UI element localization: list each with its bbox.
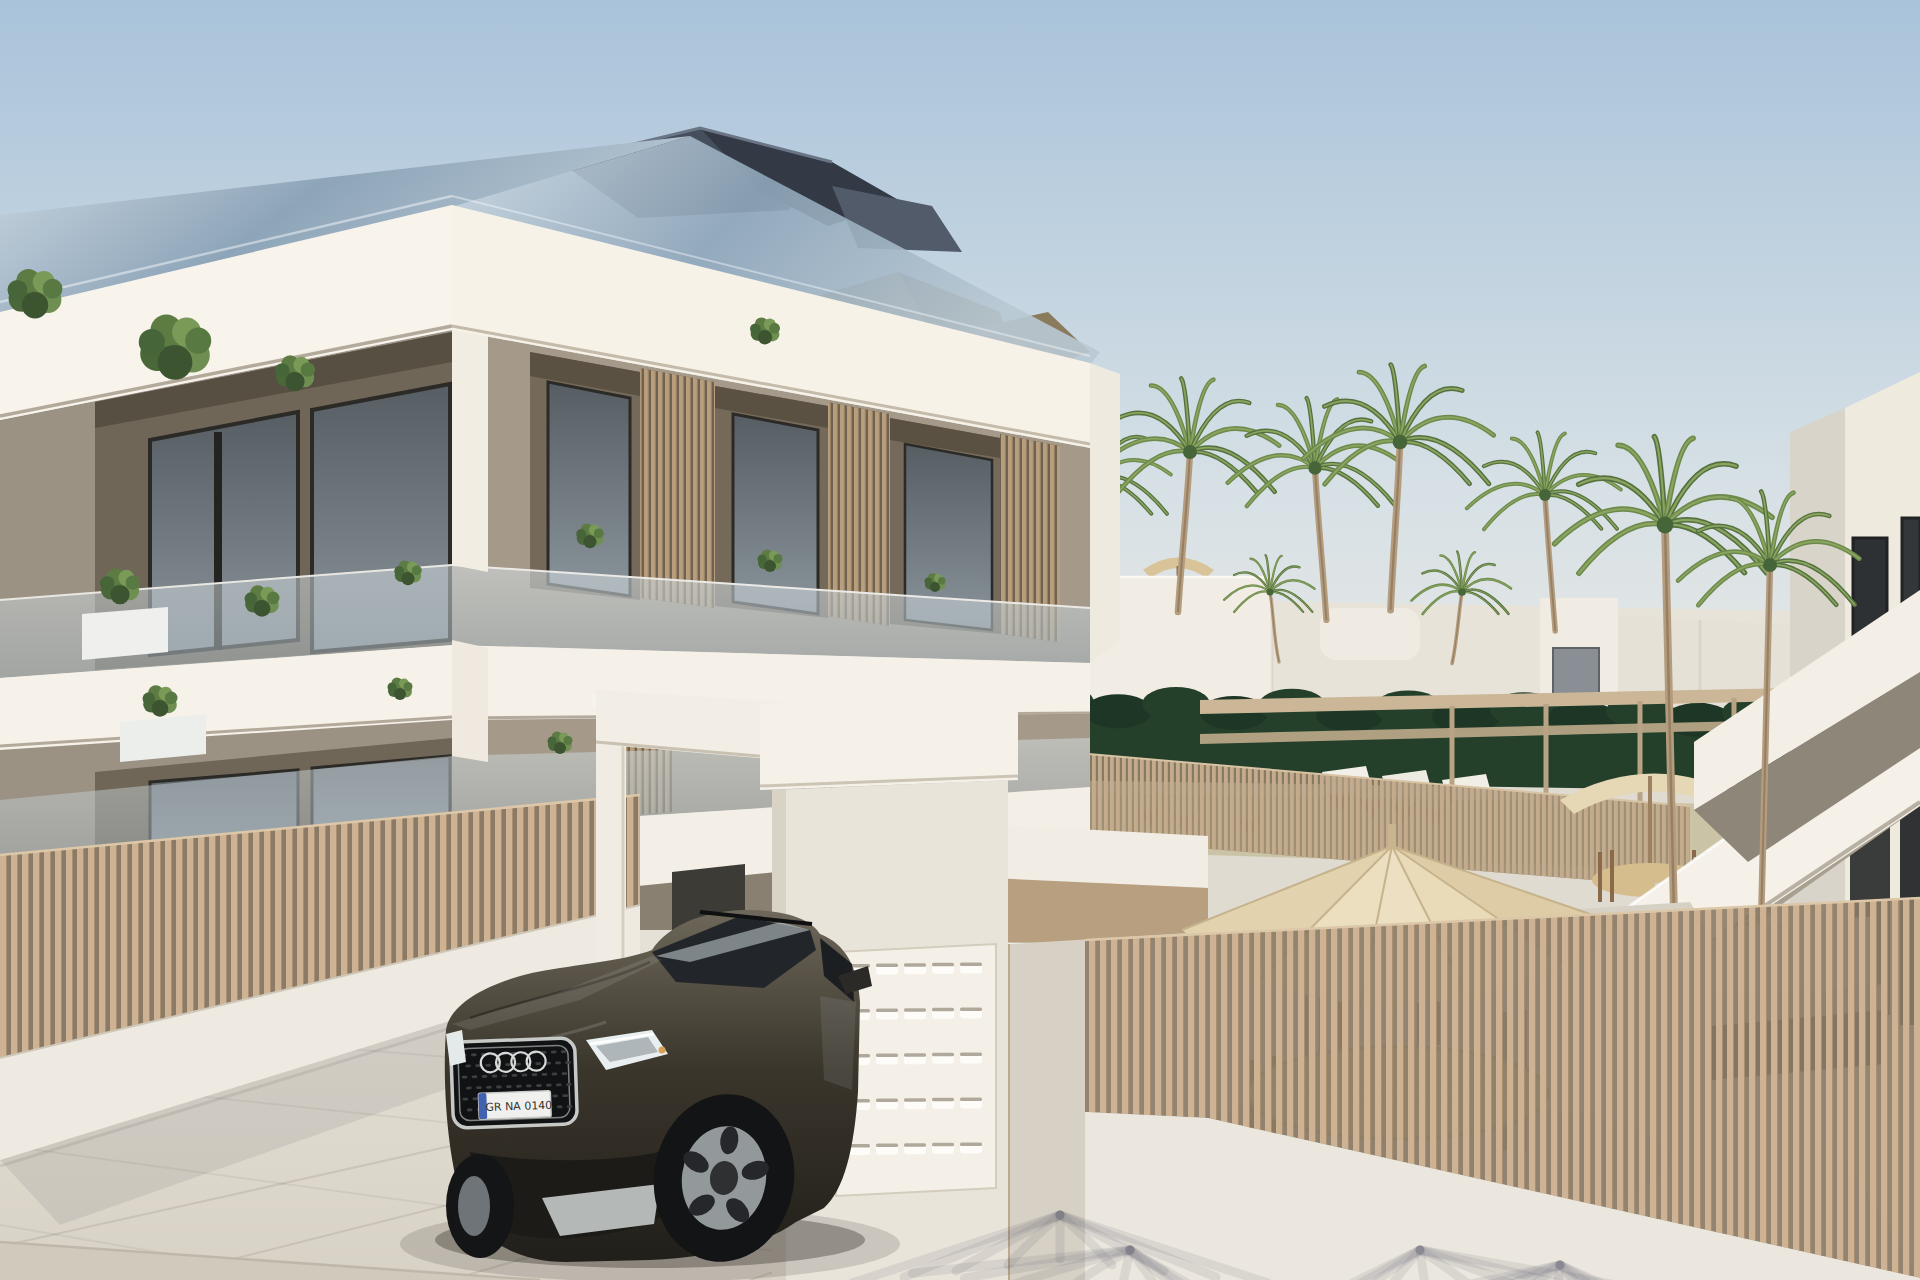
architectural-render-scene: New-build apartment complex exterior ren… [0,0,1920,1280]
building-end-cap [1090,363,1120,663]
render-canvas: New-build apartment complex exterior ren… [0,0,1920,1280]
license-plate-text: GR NA 0140 [485,1099,552,1114]
license-plate: GR NA 0140 [478,1091,552,1120]
corner-pier-first [452,640,488,762]
car-wheel-left [446,1154,514,1258]
courtyard-fence [1085,898,1920,1280]
car-grille: GR NA 0140 [451,1038,578,1128]
